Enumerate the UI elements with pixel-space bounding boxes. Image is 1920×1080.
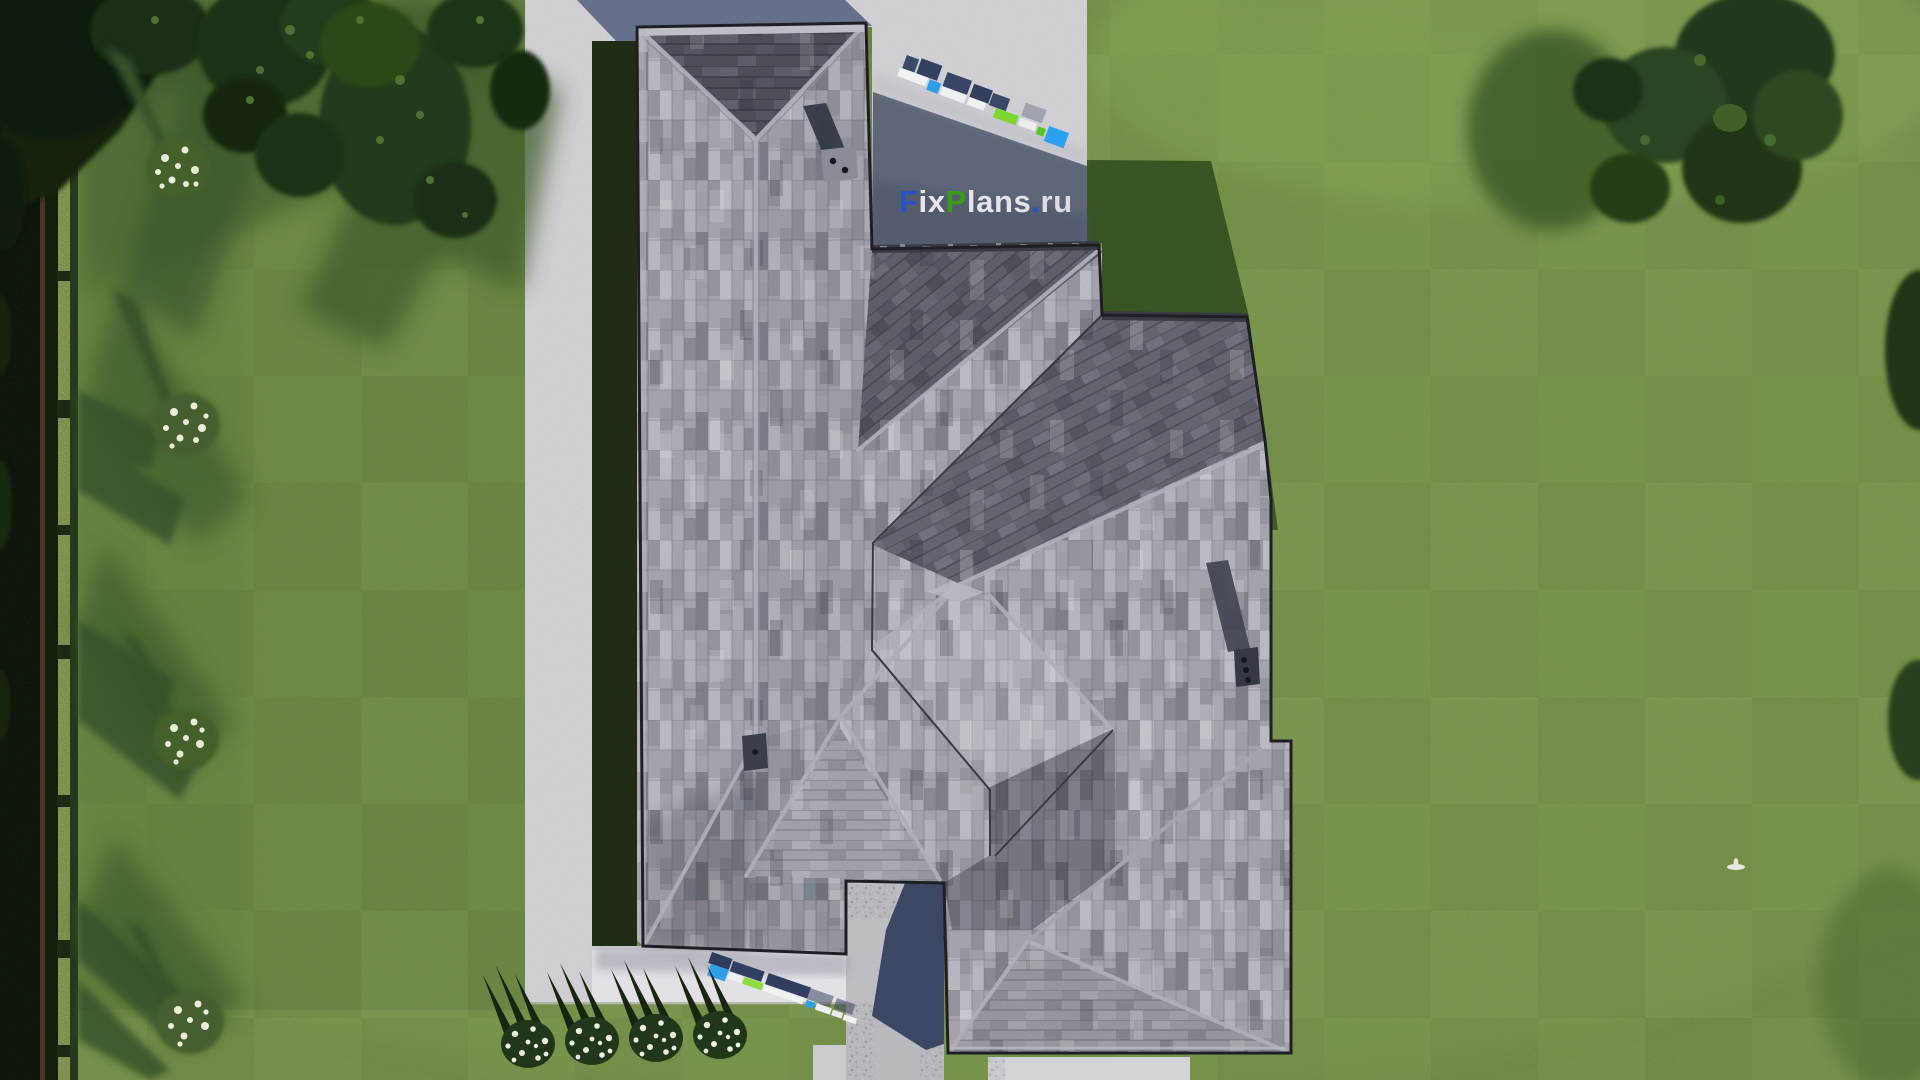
svg-text:FixPlans.ru: FixPlans.ru (899, 184, 1073, 219)
